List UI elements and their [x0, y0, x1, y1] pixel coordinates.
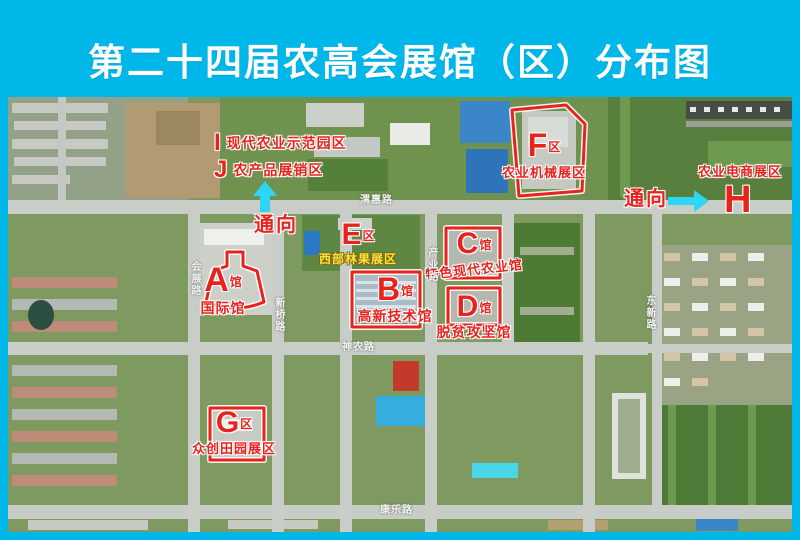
- venue-suffix-a: 馆: [230, 275, 242, 289]
- page-title: 第二十四届农高会展馆（区）分布图: [88, 44, 712, 97]
- venue-suffix-g: 区: [240, 417, 252, 431]
- venue-marker-g: G区 众创田园展区: [184, 409, 284, 457]
- connector-right-label: 通向: [624, 189, 668, 209]
- venue-marker-e: E区 西部林果展区: [308, 221, 408, 267]
- satellite-map: A馆 国际馆 B馆 高新技术馆 C馆 特色现代农业馆 D馆 脱贫攻坚馆 E区 西…: [8, 97, 792, 532]
- road-label-huizhan: 会展路: [189, 261, 199, 297]
- venue-marker-i: I 现代农业示范园区: [214, 131, 347, 155]
- venue-name-f: 农业机械展区: [502, 162, 586, 181]
- venue-letter-g: G: [216, 406, 239, 439]
- venue-marker-f: F区 农业机械展区: [494, 131, 594, 181]
- venue-suffix-f: 区: [548, 140, 560, 154]
- road-label-xinqiao: 新桥路: [273, 297, 283, 333]
- venue-suffix-c: 馆: [479, 238, 491, 252]
- road-label-dongxin: 东新路: [644, 295, 654, 331]
- road-label-chanye: 产业路: [426, 247, 436, 283]
- venue-name-g: 众创田园展区: [192, 438, 276, 457]
- road-label-weihui: 渭惠路: [360, 196, 393, 206]
- venue-letter-b: B: [377, 271, 400, 307]
- title-bar: 第二十四届农高会展馆（区）分布图: [0, 0, 800, 97]
- venue-letter-c: C: [457, 227, 479, 260]
- venue-letter-h: H: [724, 181, 751, 219]
- venue-name-a: 国际馆: [201, 298, 246, 318]
- road-label-kangle: 康乐路: [380, 506, 413, 516]
- venue-name-h: 农业电商展区: [698, 165, 782, 178]
- connector-up-label: 通向: [254, 215, 298, 235]
- venue-letter-j: J: [214, 158, 227, 182]
- venue-letter-d: D: [457, 290, 479, 323]
- venue-marker-j: J 农产品展销区: [214, 158, 323, 182]
- poster-root: { "title": "第二十四届农高会展馆（区）分布图", "map": { …: [0, 0, 800, 540]
- road-label-shennong: 神农路: [342, 343, 375, 353]
- venue-letter-i: I: [214, 131, 221, 155]
- venue-name-b: 高新技术馆: [358, 306, 433, 326]
- venue-suffix-d: 馆: [479, 301, 491, 315]
- venue-name-i: 现代农业示范园区: [227, 136, 347, 150]
- venue-suffix-e: 区: [363, 229, 375, 243]
- venue-letter-e: E: [341, 218, 361, 251]
- venue-letter-a: A: [204, 261, 229, 299]
- venue-name-j: 农产品展销区: [233, 163, 323, 177]
- venue-letter-f: F: [528, 127, 548, 163]
- venue-marker-d: D馆 脱贫攻坚馆: [424, 293, 524, 342]
- venue-name-d: 脱贫攻坚馆: [437, 322, 512, 342]
- venue-name-e: 西部林果展区: [319, 250, 397, 267]
- venue-suffix-b: 馆: [401, 284, 413, 298]
